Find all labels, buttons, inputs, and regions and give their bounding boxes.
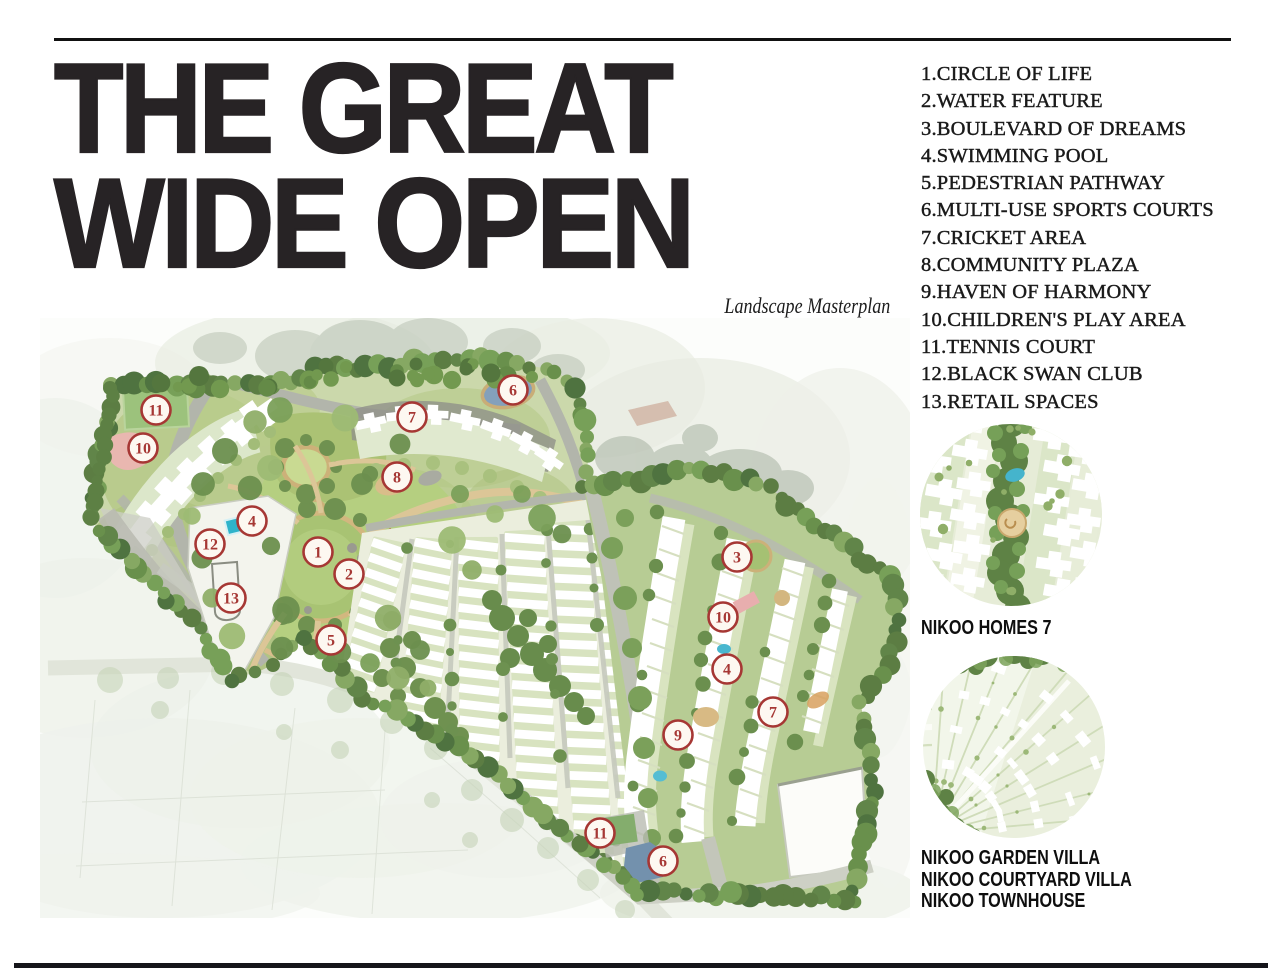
svg-text:6: 6 [509, 383, 517, 400]
svg-text:5: 5 [327, 633, 335, 650]
svg-text:9: 9 [674, 728, 682, 745]
svg-text:11: 11 [592, 826, 607, 843]
svg-text:1: 1 [314, 545, 322, 562]
svg-text:7: 7 [408, 410, 416, 427]
svg-text:2: 2 [345, 567, 353, 584]
svg-text:13: 13 [223, 591, 239, 608]
svg-text:12: 12 [202, 537, 218, 554]
svg-text:4: 4 [248, 514, 256, 531]
svg-text:4: 4 [723, 662, 731, 679]
svg-text:10: 10 [135, 441, 151, 458]
svg-text:6: 6 [659, 854, 667, 871]
svg-text:3: 3 [733, 550, 741, 567]
svg-text:7: 7 [769, 705, 777, 722]
svg-text:8: 8 [393, 470, 401, 487]
svg-text:11: 11 [148, 403, 163, 420]
svg-text:10: 10 [715, 610, 731, 627]
